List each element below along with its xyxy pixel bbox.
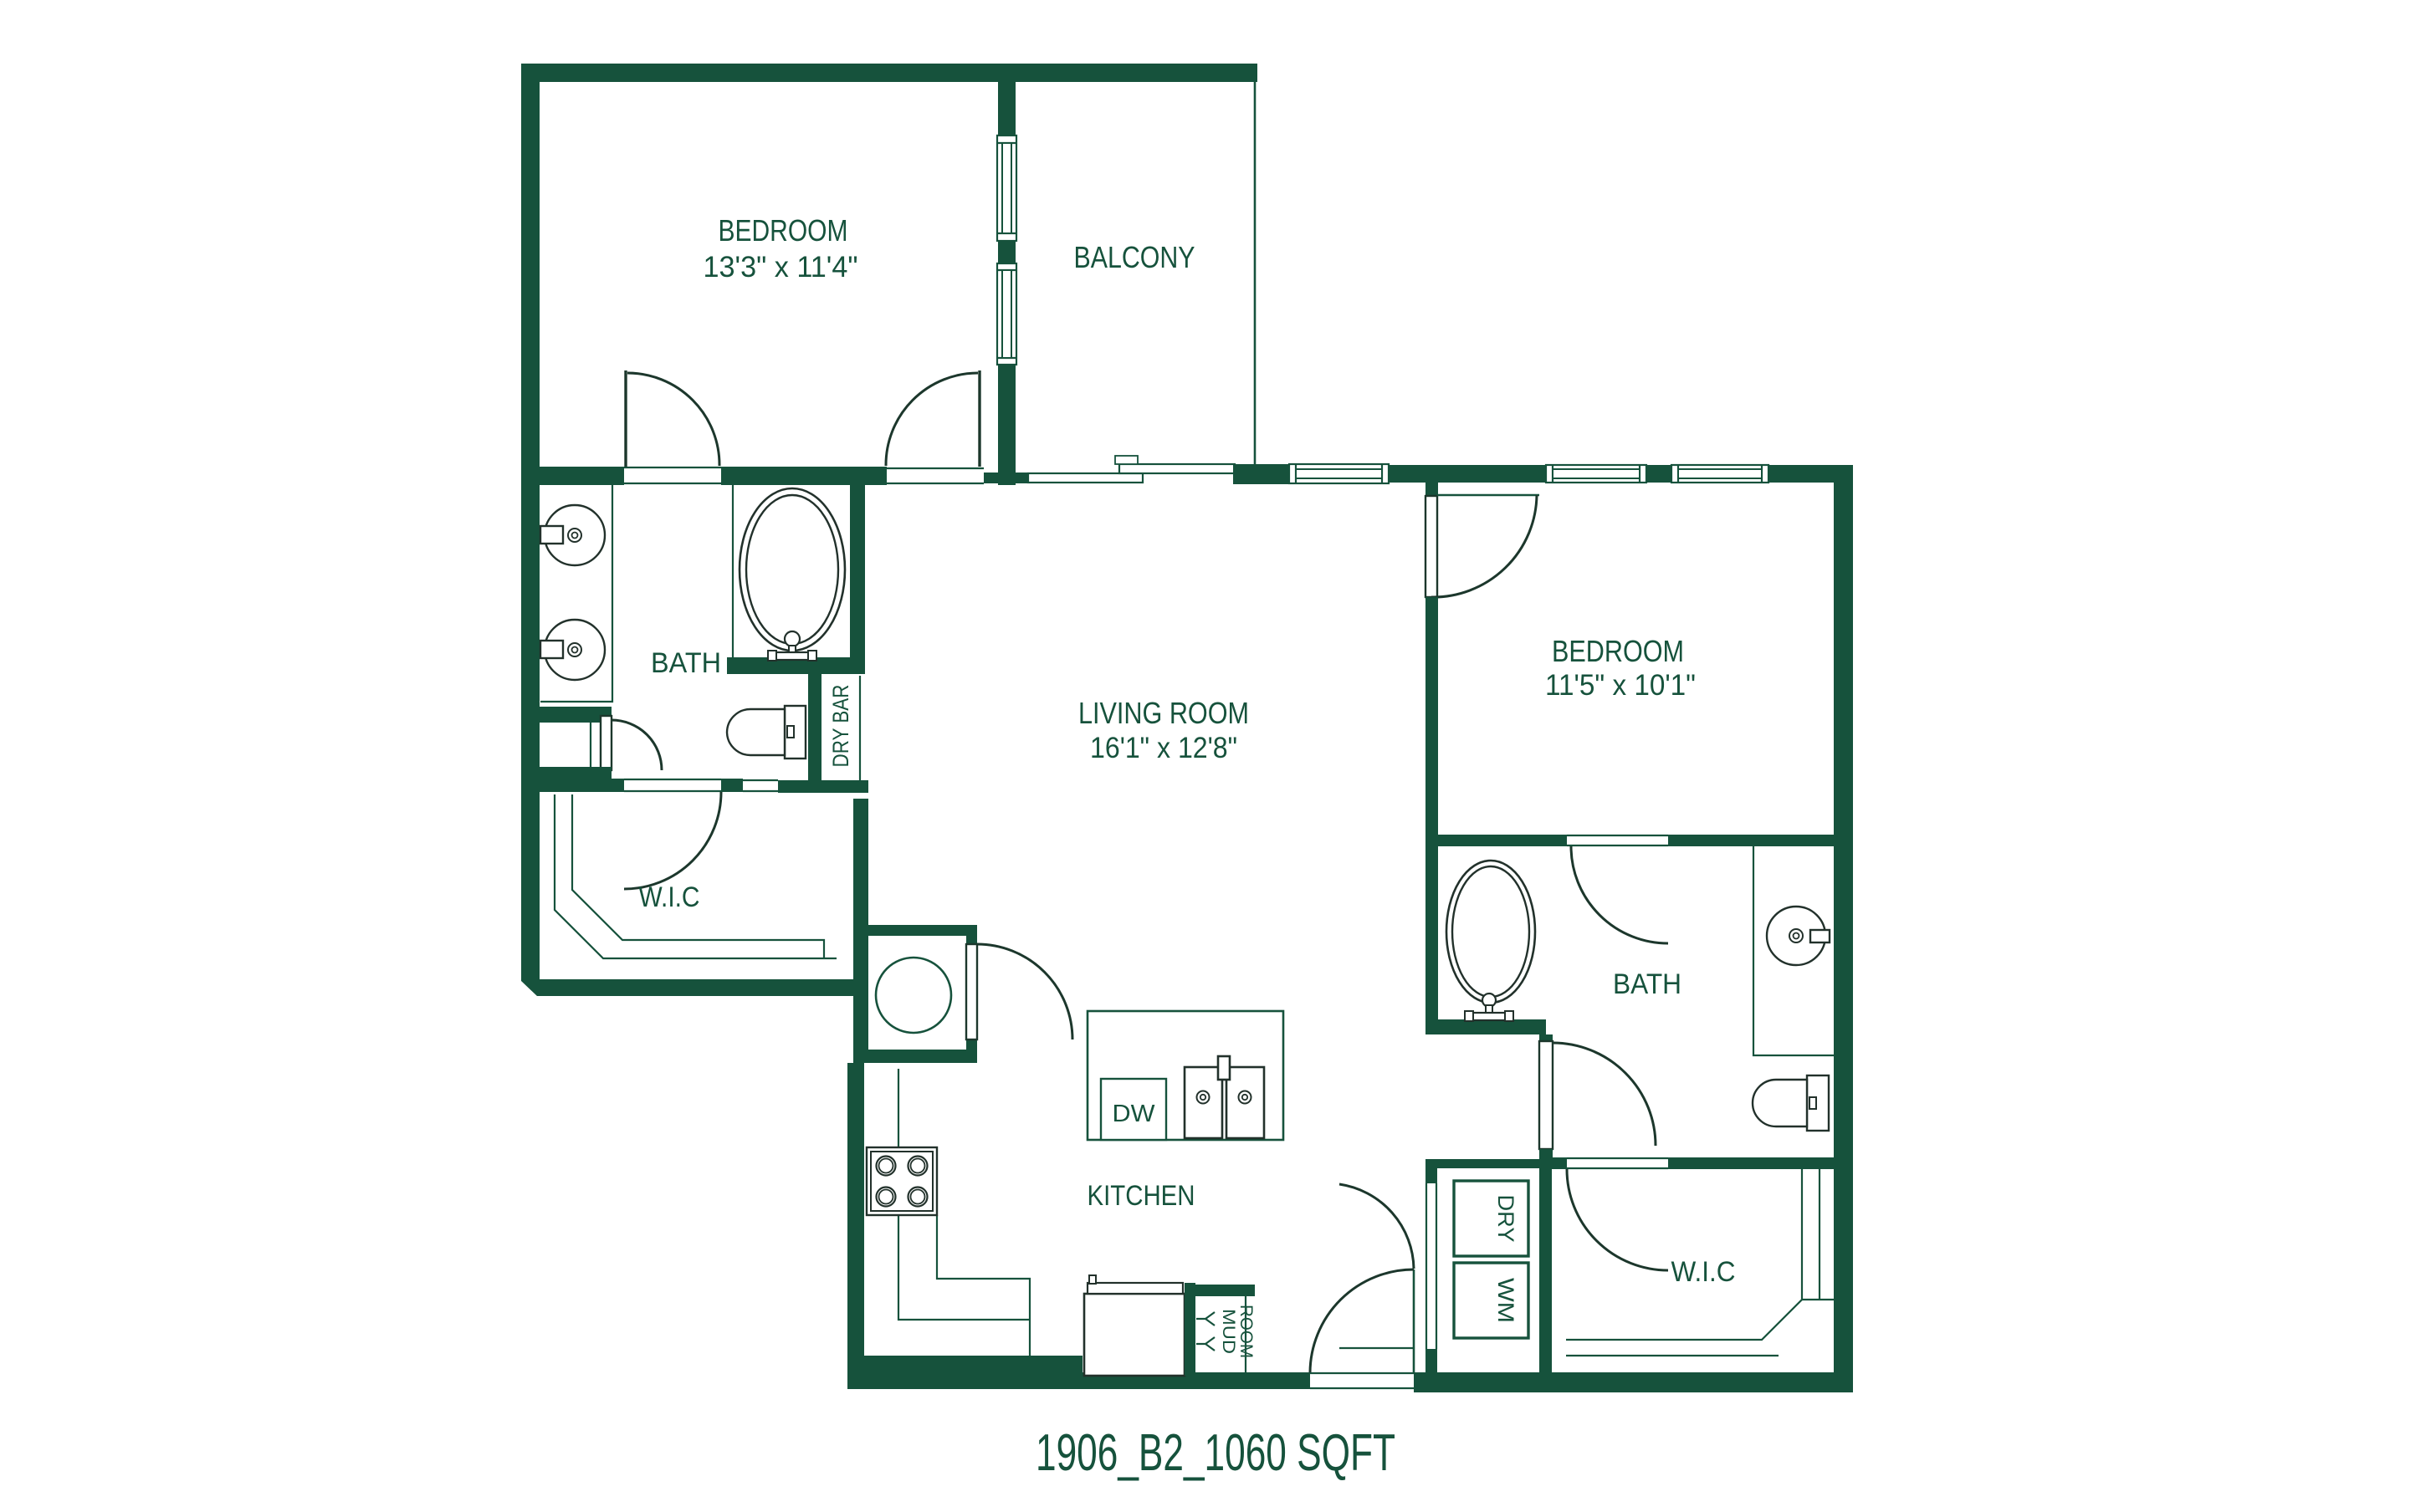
svg-text:BATH: BATH bbox=[1613, 968, 1681, 1000]
svg-text:BATH: BATH bbox=[651, 647, 721, 679]
svg-text:W.I.C: W.I.C bbox=[1671, 1256, 1736, 1288]
svg-text:1906_B2_1060 SQFT: 1906_B2_1060 SQFT bbox=[1036, 1424, 1395, 1482]
svg-text:MUD: MUD bbox=[1219, 1309, 1238, 1354]
svg-text:DRY BAR: DRY BAR bbox=[828, 685, 853, 768]
svg-text:BEDROOM: BEDROOM bbox=[719, 213, 848, 248]
svg-text:16'1" x 12'8": 16'1" x 12'8" bbox=[1090, 732, 1237, 764]
svg-text:BEDROOM: BEDROOM bbox=[1552, 634, 1684, 668]
svg-text:LIVING ROOM: LIVING ROOM bbox=[1078, 696, 1249, 730]
svg-text:BALCONY: BALCONY bbox=[1074, 240, 1195, 274]
svg-text:DW: DW bbox=[1113, 1101, 1156, 1127]
svg-text:13'3" x 11'4": 13'3" x 11'4" bbox=[704, 251, 858, 283]
svg-text:KITCHEN: KITCHEN bbox=[1088, 1180, 1195, 1212]
svg-text:W.I.C: W.I.C bbox=[639, 881, 700, 913]
svg-text:DRY: DRY bbox=[1493, 1195, 1518, 1243]
svg-text:WM: WM bbox=[1493, 1278, 1518, 1323]
svg-text:11'5" x 10'1": 11'5" x 10'1" bbox=[1545, 669, 1696, 702]
